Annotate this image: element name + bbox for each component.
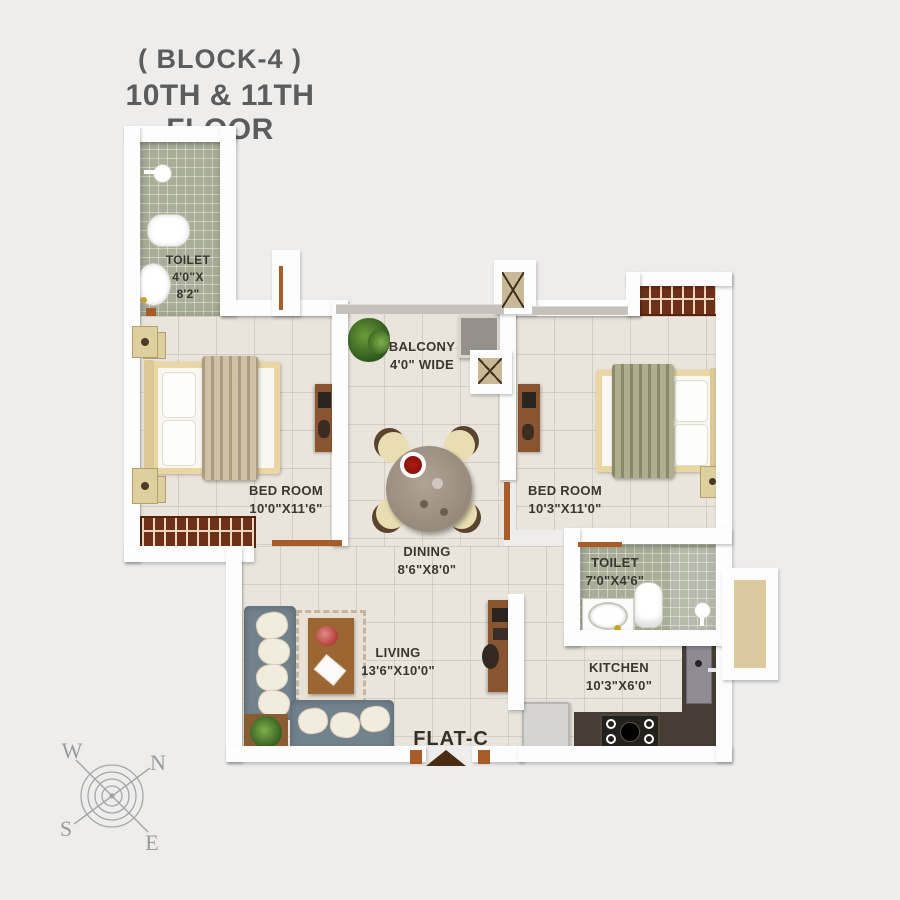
compass-west-label: W: [62, 738, 83, 763]
dining-name: DINING: [398, 543, 457, 561]
balcony-railing: [336, 304, 504, 314]
toilet2-tap-stem: [700, 616, 704, 626]
stove-burner-3: [644, 719, 654, 729]
bedroom2-label: BED ROOM 10'3"X11'0": [528, 482, 602, 519]
bed1-headboard: [144, 360, 154, 476]
bedroom1-door: [272, 540, 342, 546]
bathtub: [147, 214, 190, 247]
compass-south-label: S: [60, 816, 72, 841]
kitchen-name: KITCHEN: [586, 659, 652, 677]
toilet2-name: TOILET: [586, 554, 645, 572]
plan-title-block: ( BLOCK-4 ): [75, 44, 365, 75]
wall-pier-dot: [141, 482, 149, 490]
door-jamb: [146, 308, 156, 316]
toilet1-name: TOILET: [166, 252, 210, 269]
toilet2-glass-partition: [670, 548, 716, 632]
toilet2-dim: 7'0"X4'6": [586, 572, 645, 590]
bedroom1-dim: 10'0"X11'6": [249, 500, 323, 518]
service-duct: [734, 580, 766, 668]
bedroom2-window-sill: [532, 306, 628, 315]
bedroom2-wardrobe-rail: [640, 298, 714, 300]
stove-center-plate: [620, 722, 640, 742]
bedroom2-door: [504, 482, 510, 540]
entry-door-jamb-left: [410, 750, 422, 764]
dining-label: DINING 8'6"X8'0": [398, 543, 457, 580]
study-desk-chair: [482, 644, 499, 669]
wall: [226, 746, 426, 762]
toilet2-door: [578, 542, 622, 547]
dining-plate-2: [420, 500, 428, 508]
wall: [226, 546, 242, 762]
toilet1-dim1: 4'0"X: [166, 269, 210, 286]
wall: [272, 250, 300, 316]
kitchen-label: KITCHEN 10'3"X6'0": [586, 659, 652, 696]
wall: [564, 630, 732, 646]
service-duct: [478, 358, 502, 384]
bedroom1-label: BED ROOM 10'0"X11'6": [249, 482, 323, 519]
bed2-pillow-bottom: [674, 424, 708, 466]
living-dim: 13'6"X10'0": [361, 662, 435, 680]
wall: [332, 300, 348, 546]
compass-line-ns: [74, 768, 150, 824]
balcony-dim: 4'0" WIDE: [389, 356, 455, 374]
bed2-blanket: [612, 364, 674, 478]
entry-door-jamb-right: [478, 750, 490, 764]
stove-burner-1: [606, 719, 616, 729]
wash-basin-2: [588, 602, 628, 630]
dining-flowers: [404, 456, 422, 474]
kitchen-sink: [686, 640, 712, 704]
stove-burner-4: [644, 734, 654, 744]
toilet1-label: TOILET 4'0"X 8'2": [166, 252, 210, 303]
toilet2-label: TOILET 7'0"X4'6": [586, 554, 645, 591]
bedroom1-name: BED ROOM: [249, 482, 323, 500]
wall: [626, 272, 732, 286]
kitchen-sink-drain: [695, 660, 702, 667]
nightstand2-lamp: [709, 478, 716, 485]
bedroom2-wardrobe: [636, 284, 718, 316]
bedroom1-dresser-item: [318, 392, 331, 408]
wall: [508, 594, 524, 710]
wall-pier-dot: [141, 338, 149, 346]
bedroom1-wardrobe: [140, 516, 256, 548]
dining-dim: 8'6"X8'0": [398, 561, 457, 579]
shower-head: [153, 164, 172, 183]
bedroom2-desk-decor: [522, 424, 534, 440]
wall: [220, 126, 236, 316]
bed2-pillow-top: [674, 380, 708, 422]
flat-label: FLAT-C: [413, 728, 489, 751]
bedroom2-desk-item: [522, 392, 536, 408]
toilet1-dim2: 8'2": [166, 286, 210, 303]
bed1-pillow-top: [162, 372, 196, 418]
dining-plate-1: [432, 478, 443, 489]
balcony-label: BALCONY 4'0" WIDE: [389, 338, 455, 375]
toilet1-door: [279, 266, 283, 310]
bedroom1-dresser-decor: [318, 420, 330, 438]
bedroom1-wardrobe-rail: [144, 530, 252, 532]
stove-burner-2: [606, 734, 616, 744]
bedroom2-name: BED ROOM: [528, 482, 602, 500]
kitchen-dim: 10'3"X6'0": [586, 677, 652, 695]
balcony-plant-leaves: [368, 330, 390, 354]
living-label: LIVING 13'6"X10'0": [361, 644, 435, 681]
living-plant: [250, 716, 282, 748]
wall: [518, 746, 732, 762]
dining-table: [386, 446, 472, 532]
living-name: LIVING: [361, 644, 435, 662]
dining-plate-3: [440, 508, 448, 516]
shower-arm: [144, 170, 155, 174]
compass-east-label: E: [145, 830, 158, 855]
bedroom2-dim: 10'3"X11'0": [528, 500, 602, 518]
service-duct: [502, 272, 524, 308]
compass-north-label: N: [150, 750, 166, 775]
coffee-table-flowers: [316, 626, 338, 646]
basin-tap-1: [141, 297, 147, 303]
bed1-pillow-bottom: [162, 420, 196, 466]
balcony-name: BALCONY: [389, 338, 455, 356]
compass-rose: W N S E: [50, 736, 174, 860]
entry-arrow: [426, 750, 466, 766]
bed1-blanket: [202, 356, 258, 480]
